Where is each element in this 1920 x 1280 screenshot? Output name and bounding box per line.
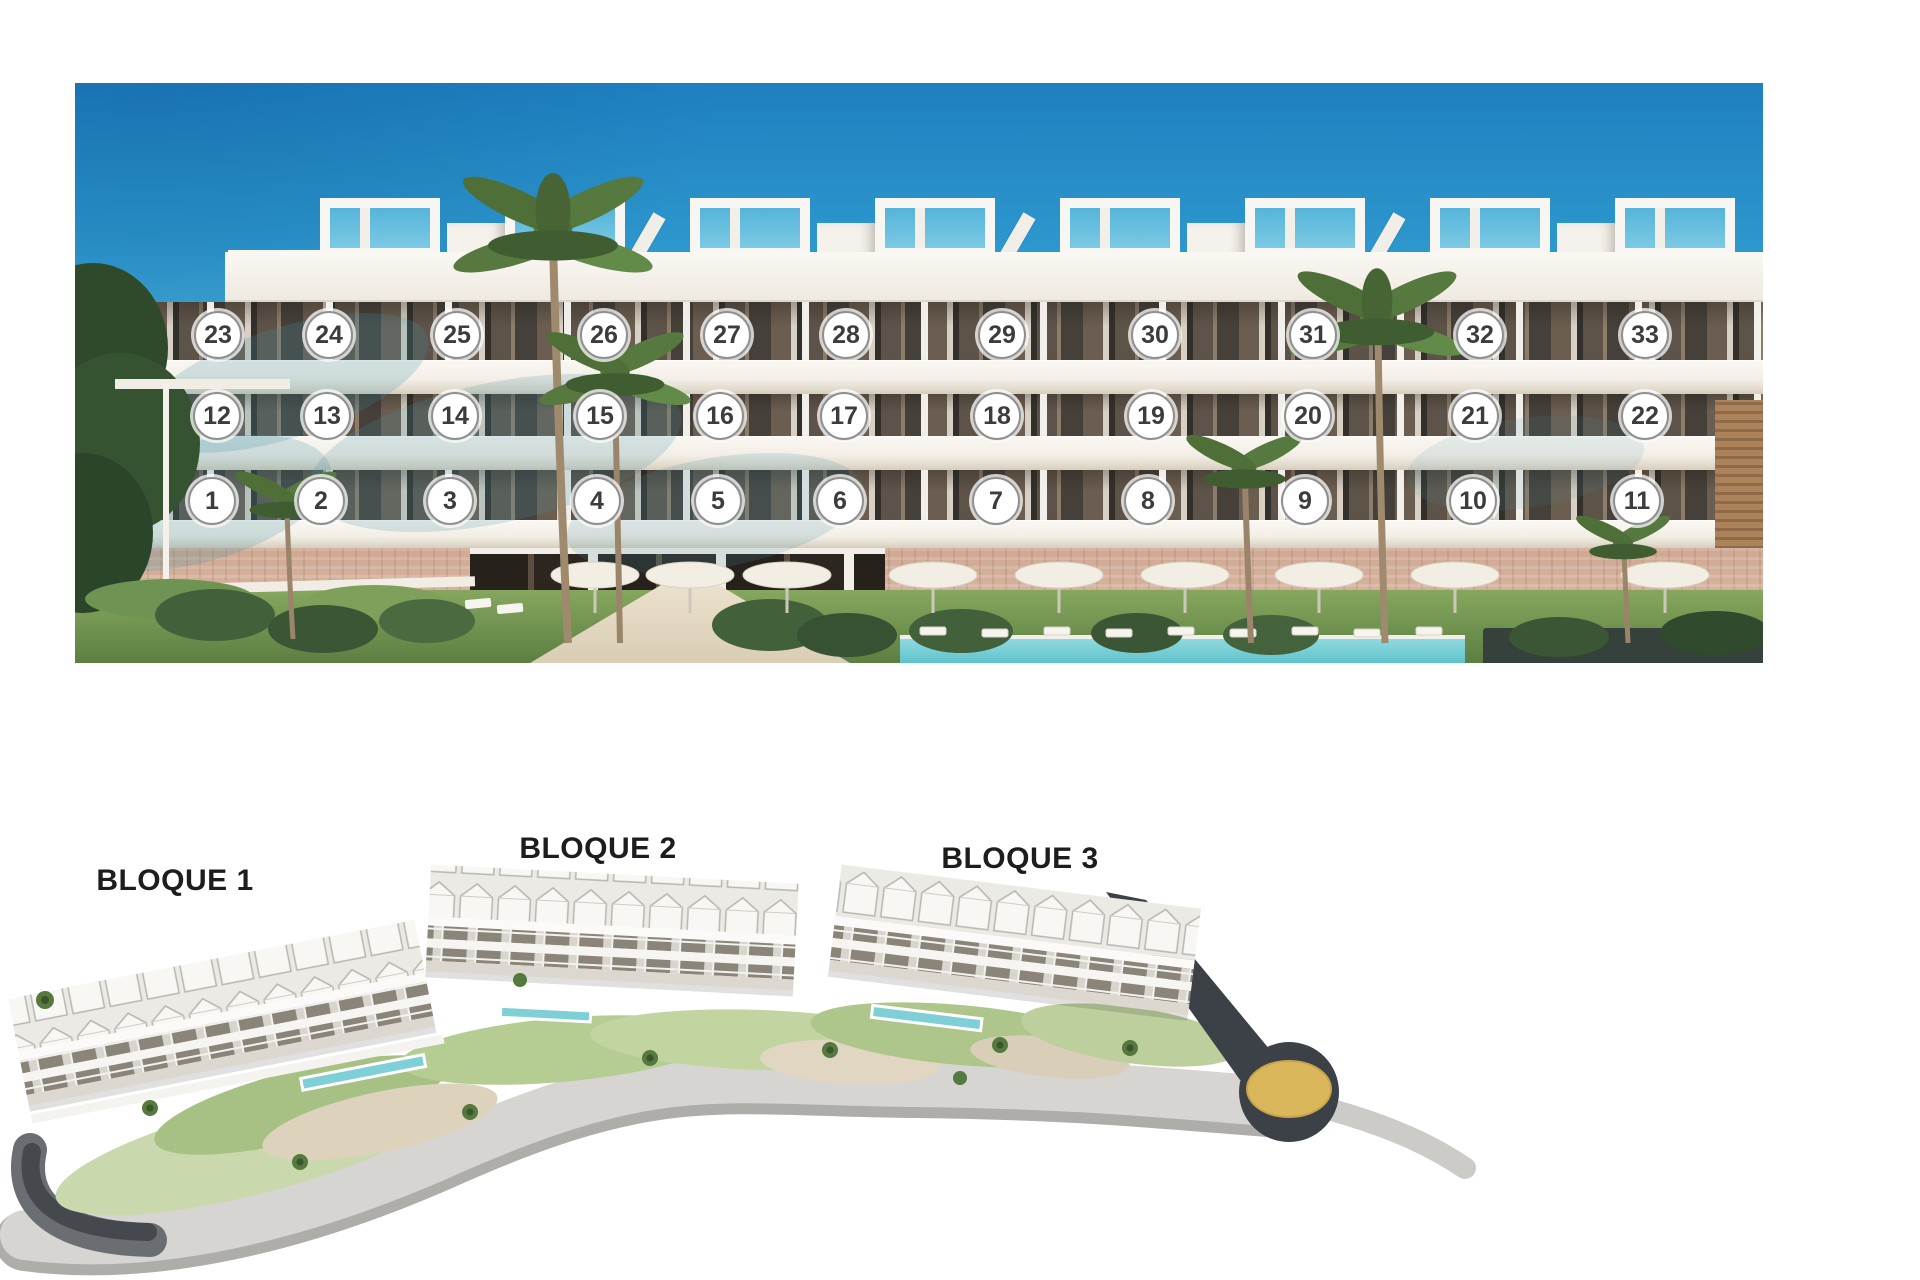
unit-badge-24: 24 bbox=[305, 311, 353, 359]
bloque-2-building bbox=[423, 864, 798, 1032]
unit-badge-14: 14 bbox=[431, 392, 479, 440]
block-label-3: BLOQUE 3 bbox=[941, 842, 1098, 876]
unit-badge-2: 2 bbox=[297, 477, 345, 525]
unit-badge-8: 8 bbox=[1124, 477, 1172, 525]
bloque-2-pool bbox=[500, 1006, 590, 1022]
unit-badge-4: 4 bbox=[573, 477, 621, 525]
page: 2324252627282930313233121314151617181920… bbox=[0, 0, 1920, 1280]
unit-badge-31: 31 bbox=[1289, 311, 1337, 359]
unit-badge-6: 6 bbox=[816, 477, 864, 525]
unit-badge-28: 28 bbox=[822, 311, 870, 359]
unit-badge-29: 29 bbox=[978, 311, 1026, 359]
unit-badge-11: 11 bbox=[1613, 477, 1661, 525]
unit-badge-22: 22 bbox=[1621, 392, 1669, 440]
unit-badge-12: 12 bbox=[193, 392, 241, 440]
unit-badge-7: 7 bbox=[972, 477, 1020, 525]
unit-badge-30: 30 bbox=[1131, 311, 1179, 359]
roundabout-center bbox=[1247, 1061, 1331, 1117]
unit-badge-23: 23 bbox=[194, 311, 242, 359]
unit-badge-27: 27 bbox=[703, 311, 751, 359]
block-label-1: BLOQUE 1 bbox=[96, 864, 253, 898]
unit-badge-15: 15 bbox=[576, 392, 624, 440]
unit-badge-9: 9 bbox=[1281, 477, 1329, 525]
unit-badge-13: 13 bbox=[303, 392, 351, 440]
site-plan-rendering: BLOQUE 1BLOQUE 2BLOQUE 3 bbox=[0, 820, 1920, 1280]
block-label-2: BLOQUE 2 bbox=[519, 832, 676, 866]
unit-badge-3: 3 bbox=[426, 477, 474, 525]
unit-badge-21: 21 bbox=[1451, 392, 1499, 440]
unit-badge-10: 10 bbox=[1449, 477, 1497, 525]
unit-badge-17: 17 bbox=[820, 392, 868, 440]
unit-badge-5: 5 bbox=[694, 477, 742, 525]
unit-badge-20: 20 bbox=[1284, 392, 1332, 440]
unit-badge-16: 16 bbox=[696, 392, 744, 440]
unit-badge-1: 1 bbox=[188, 477, 236, 525]
unit-badge-33: 33 bbox=[1621, 311, 1669, 359]
unit-badges: 2324252627282930313233121314151617181920… bbox=[75, 83, 1763, 663]
unit-badge-19: 19 bbox=[1127, 392, 1175, 440]
unit-badge-25: 25 bbox=[433, 311, 481, 359]
elevation-photo: 2324252627282930313233121314151617181920… bbox=[75, 83, 1763, 663]
site-plan-art bbox=[0, 820, 1920, 1280]
unit-badge-32: 32 bbox=[1456, 311, 1504, 359]
unit-badge-26: 26 bbox=[580, 311, 628, 359]
unit-badge-18: 18 bbox=[973, 392, 1021, 440]
